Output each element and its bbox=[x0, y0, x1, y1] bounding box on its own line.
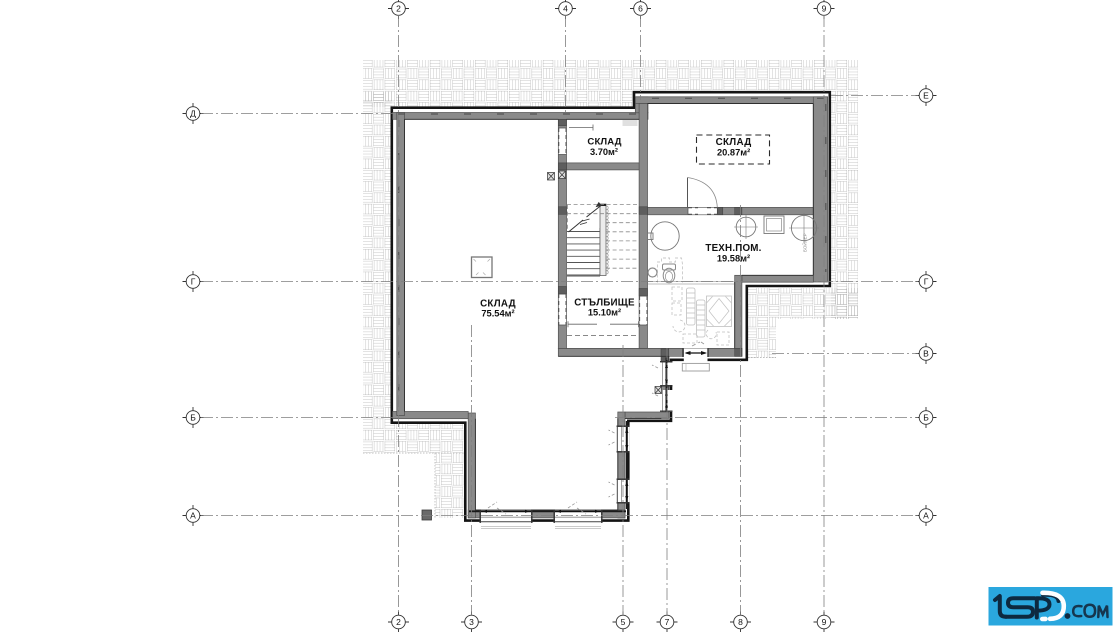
svg-text:2: 2 bbox=[396, 4, 401, 14]
svg-text:СТЪЛБИЩЕ: СТЪЛБИЩЕ bbox=[574, 297, 635, 308]
svg-text:2: 2 bbox=[396, 617, 401, 627]
svg-text:15.10м²: 15.10м² bbox=[588, 308, 621, 318]
svg-text:ТЕХН.ПОМ.: ТЕХН.ПОМ. bbox=[705, 243, 761, 254]
svg-text:3: 3 bbox=[469, 617, 474, 627]
svg-text:7: 7 bbox=[665, 617, 670, 627]
svg-text:СКЛАД: СКЛАД bbox=[587, 137, 621, 148]
svg-text:8: 8 bbox=[738, 617, 743, 627]
svg-text:75.54м²: 75.54м² bbox=[481, 309, 514, 319]
svg-text:4: 4 bbox=[563, 4, 568, 14]
svg-text:9: 9 bbox=[822, 617, 827, 627]
svg-text:9: 9 bbox=[822, 4, 827, 14]
svg-text:Е: Е bbox=[923, 91, 929, 101]
svg-text:Б: Б bbox=[190, 413, 196, 423]
svg-text:СКЛАД: СКЛАД bbox=[480, 298, 516, 309]
svg-text:Б: Б bbox=[923, 413, 929, 423]
svg-text:СКЛАД: СКЛАД bbox=[716, 137, 752, 148]
svg-text:Г: Г bbox=[924, 277, 929, 287]
svg-text:Г: Г bbox=[191, 277, 196, 287]
svg-text:5: 5 bbox=[621, 617, 626, 627]
svg-text:В: В bbox=[923, 349, 929, 359]
svg-text:А: А bbox=[190, 511, 196, 521]
svg-text:Д: Д bbox=[190, 109, 196, 119]
svg-text:БОЙЛЕР: БОЙЛЕР bbox=[801, 233, 808, 252]
svg-text:20.87м²: 20.87м² bbox=[717, 147, 750, 157]
svg-text:19.58м²: 19.58м² bbox=[717, 254, 750, 264]
svg-text:А: А bbox=[923, 511, 929, 521]
svg-text:6: 6 bbox=[638, 4, 643, 14]
svg-text:3.70м²: 3.70м² bbox=[590, 147, 618, 157]
